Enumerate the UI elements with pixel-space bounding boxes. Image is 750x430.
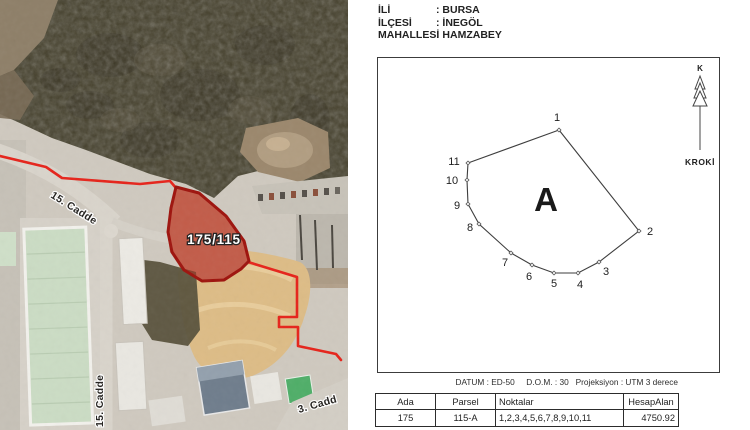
vertex-label-8: 8	[467, 222, 473, 234]
vertex-label-7: 7	[502, 257, 508, 269]
location-header: İLİ: BURSA İLÇESİ: İNEGÖL MAHALLESİ: HAM…	[378, 4, 502, 42]
header-row-province: İLİ: BURSA	[378, 4, 502, 17]
satellite-map: 175/115 15. Cadde 15. Cadde 3. Cadd	[0, 0, 348, 430]
vertex-label-10: 10	[446, 175, 458, 187]
table-cell-hesapalan: 4750.92	[624, 410, 678, 426]
vertex-marker-4	[576, 271, 580, 275]
cadastral-document-page: { "map": { "parcel_label": "175/115", "s…	[0, 0, 750, 430]
table-header-ada: Ada	[376, 394, 436, 410]
parcel-table: Ada Parsel Noktalar HesapAlan 175 115-A …	[375, 393, 679, 427]
table-cell-parsel: 115-A	[436, 410, 496, 426]
header-row-neighborhood: MAHALLESİ: HAMZABEY	[378, 29, 502, 42]
kroki-caption: KROKİ	[685, 157, 715, 167]
header-row-district: İLÇESİ: İNEGÖL	[378, 17, 502, 30]
district-value: : İNEGÖL	[436, 17, 483, 29]
scan-grain-overlay	[0, 0, 348, 430]
vertex-label-5: 5	[551, 278, 557, 290]
table-cell-ada: 175	[376, 410, 436, 426]
vertex-label-2: 2	[647, 226, 653, 238]
province-label: İLİ	[378, 4, 436, 17]
north-arrow-icon: K	[693, 64, 707, 150]
table-header-noktalar: Noktalar	[496, 394, 624, 410]
vertex-label-1: 1	[554, 112, 560, 124]
vertex-label-11: 11	[448, 156, 459, 168]
parcel-area-letter: A	[534, 181, 558, 218]
datum-note: DATUM : ED-50 D.O.M. : 30 Projeksiyon : …	[377, 377, 678, 387]
table-cell-noktalar: 1,2,3,4,5,6,7,8,9,10,11	[496, 410, 624, 426]
table-header-parsel: Parsel	[436, 394, 496, 410]
province-value: : BURSA	[436, 4, 480, 16]
satellite-map-image: 175/115 15. Cadde 15. Cadde 3. Cadd	[0, 0, 348, 430]
vertex-marker-10	[465, 178, 469, 182]
vertex-label-3: 3	[603, 266, 609, 278]
vertex-marker-11	[466, 161, 470, 165]
vertex-label-4: 4	[577, 279, 583, 291]
neighborhood-label: MAHALLESİ	[378, 29, 436, 42]
vertex-label-9: 9	[454, 200, 460, 212]
vertex-marker-5	[552, 271, 556, 275]
neighborhood-value: : HAMZABEY	[436, 29, 502, 41]
north-letter: K	[697, 64, 703, 73]
kroki-sketch-box: 1234567891011 A K KROKİ	[377, 57, 720, 373]
district-label: İLÇESİ	[378, 17, 436, 30]
table-header-hesapalan: HesapAlan	[624, 394, 678, 410]
kroki-sketch: 1234567891011 A K KROKİ	[378, 58, 719, 372]
vertex-label-6: 6	[526, 271, 532, 283]
